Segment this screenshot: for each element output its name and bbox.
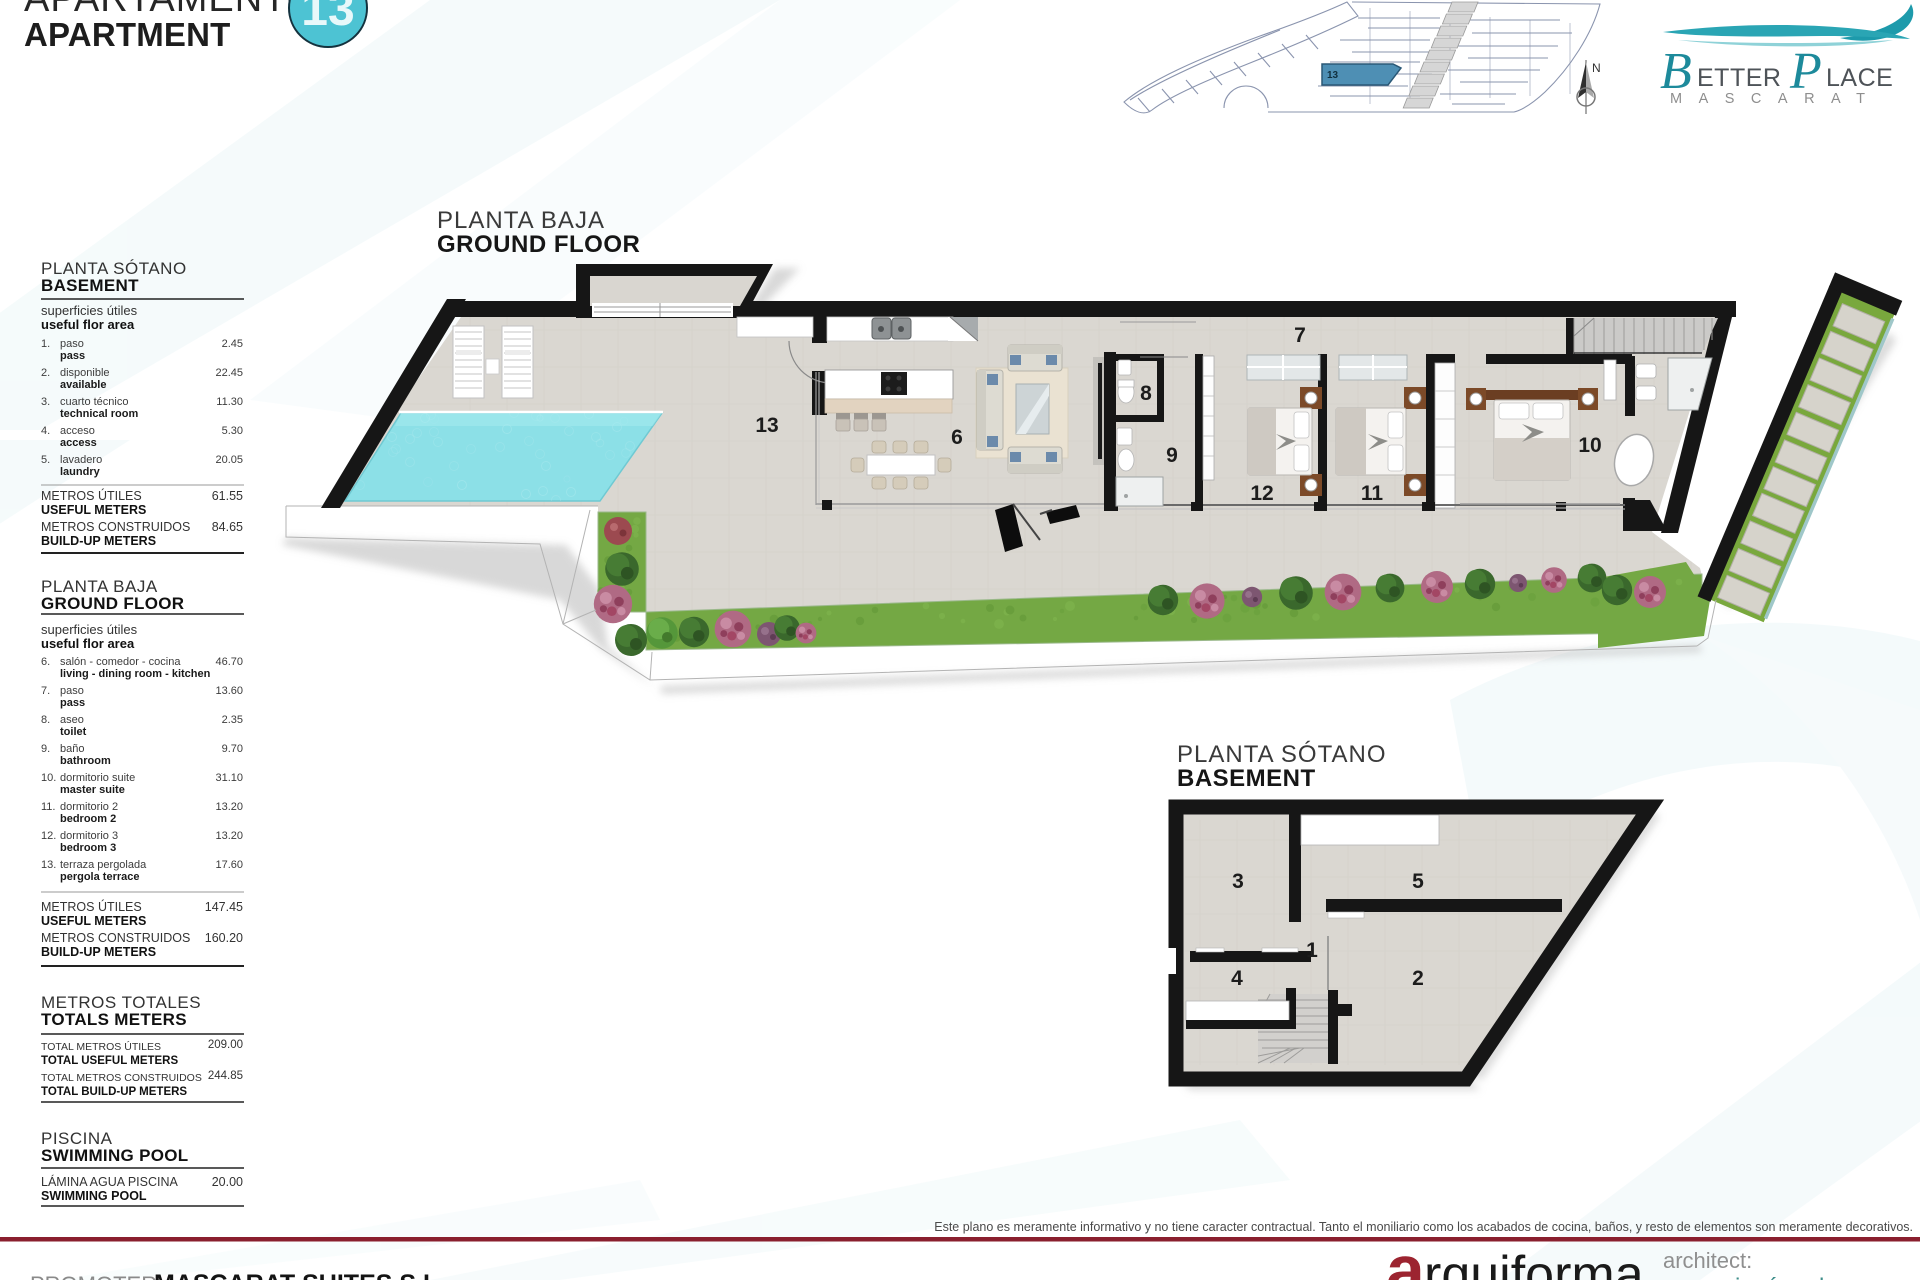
svg-text:4.: 4. <box>41 425 50 437</box>
svg-text:TOTAL METROS ÚTILES: TOTAL METROS ÚTILES <box>41 1040 161 1053</box>
svg-text:9: 9 <box>1166 444 1178 467</box>
svg-text:living - dining room - kitchen: living - dining room - kitchen <box>60 668 211 680</box>
svg-text:josé carlos: josé carlos <box>1734 1274 1850 1280</box>
svg-text:5.: 5. <box>41 454 50 466</box>
svg-text:paso: paso <box>60 338 84 350</box>
svg-text:access: access <box>60 437 97 449</box>
svg-text:46.70: 46.70 <box>215 656 243 668</box>
svg-text:BUILD-UP METERS: BUILD-UP METERS <box>41 534 156 548</box>
svg-text:laundry: laundry <box>60 466 101 478</box>
svg-text:TOTAL METROS CONSTRUIDOS: TOTAL METROS CONSTRUIDOS <box>41 1072 202 1084</box>
svg-text:baño: baño <box>60 743 84 755</box>
svg-text:13.20: 13.20 <box>215 801 243 813</box>
svg-text:13.: 13. <box>41 859 56 871</box>
svg-text:SWIMMING POOL: SWIMMING POOL <box>41 1189 147 1203</box>
svg-text:dormitorio suite: dormitorio suite <box>60 772 135 784</box>
svg-text:244.85: 244.85 <box>208 1070 243 1082</box>
svg-text:USEFUL METERS: USEFUL METERS <box>41 914 146 928</box>
svg-text:technical room: technical room <box>60 408 138 420</box>
svg-text:superficies útiles: superficies útiles <box>41 622 138 637</box>
svg-text:3: 3 <box>1232 870 1244 893</box>
svg-text:4: 4 <box>1231 967 1243 990</box>
svg-text:2.35: 2.35 <box>222 714 243 726</box>
svg-text:pergola terrace: pergola terrace <box>60 871 139 883</box>
svg-text:2.45: 2.45 <box>222 338 243 350</box>
svg-text:bathroom: bathroom <box>60 755 111 767</box>
svg-text:cuarto técnico: cuarto técnico <box>60 396 128 408</box>
svg-text:17.60: 17.60 <box>215 859 243 871</box>
svg-text:20.00: 20.00 <box>212 1175 243 1189</box>
svg-text:disponible: disponible <box>60 367 110 379</box>
svg-text:rquiforma: rquiforma <box>1424 1246 1644 1280</box>
svg-text:13: 13 <box>301 0 354 36</box>
svg-text:GROUND FLOOR: GROUND FLOOR <box>437 231 640 258</box>
svg-text:11.30: 11.30 <box>216 396 243 408</box>
svg-text:MASCARAT: MASCARAT <box>1670 91 1882 107</box>
svg-text:8.: 8. <box>41 714 50 726</box>
svg-text:6: 6 <box>951 426 963 449</box>
svg-text:ETTER: ETTER <box>1697 64 1781 92</box>
svg-text:salón - comedor - cocina: salón - comedor - cocina <box>60 656 181 668</box>
svg-text:TOTALS METERS: TOTALS METERS <box>41 1010 187 1029</box>
svg-text:METROS ÚTILES: METROS ÚTILES <box>41 488 142 503</box>
svg-text:2: 2 <box>1412 967 1424 990</box>
svg-text:TOTAL USEFUL METERS: TOTAL USEFUL METERS <box>41 1055 178 1067</box>
svg-text:147.45: 147.45 <box>205 900 243 914</box>
svg-text:PLANTA BAJA: PLANTA BAJA <box>437 207 605 234</box>
svg-text:20.05: 20.05 <box>215 454 243 466</box>
svg-text:13: 13 <box>1327 70 1339 81</box>
svg-text:84.65: 84.65 <box>212 520 243 534</box>
svg-text:TOTAL BUILD-UP METERS: TOTAL BUILD-UP METERS <box>41 1086 187 1098</box>
svg-text:METROS CONSTRUIDOS: METROS CONSTRUIDOS <box>41 931 190 945</box>
svg-text:available: available <box>60 379 106 391</box>
svg-text:22.45: 22.45 <box>215 367 243 379</box>
svg-text:7.: 7. <box>41 685 50 697</box>
svg-text:bedroom 3: bedroom 3 <box>60 842 116 854</box>
svg-text:USEFUL METERS: USEFUL METERS <box>41 503 146 517</box>
svg-text:BUILD-UP METERS: BUILD-UP METERS <box>41 945 156 959</box>
svg-text:LÁMINA AGUA PISCINA: LÁMINA AGUA PISCINA <box>41 1174 179 1189</box>
svg-text:3.: 3. <box>41 396 50 408</box>
svg-text:GROUND FLOOR: GROUND FLOOR <box>41 594 184 613</box>
svg-text:toilet: toilet <box>60 726 87 738</box>
svg-text:160.20: 160.20 <box>205 931 243 945</box>
svg-text:5: 5 <box>1412 870 1424 893</box>
svg-text:7: 7 <box>1294 324 1306 347</box>
svg-text:61.55: 61.55 <box>212 489 243 503</box>
svg-text:METROS CONSTRUIDOS: METROS CONSTRUIDOS <box>41 520 190 534</box>
svg-text:N: N <box>1592 61 1601 75</box>
svg-text:SWIMMING POOL: SWIMMING POOL <box>41 1146 188 1165</box>
svg-text:9.70: 9.70 <box>222 743 243 755</box>
svg-text:13.60: 13.60 <box>215 685 243 697</box>
svg-text:13: 13 <box>755 414 778 437</box>
svg-text:9.: 9. <box>41 743 50 755</box>
svg-text:a: a <box>1386 1231 1426 1280</box>
svg-text:master suite: master suite <box>60 784 125 796</box>
svg-text:1.: 1. <box>41 338 50 350</box>
svg-text:PLANTA SÓTANO: PLANTA SÓTANO <box>1177 741 1387 768</box>
svg-text:1: 1 <box>1306 939 1318 962</box>
svg-text:METROS ÚTILES: METROS ÚTILES <box>41 899 142 914</box>
svg-text:BASEMENT: BASEMENT <box>41 276 139 295</box>
svg-text:209.00: 209.00 <box>208 1039 243 1051</box>
svg-text:12.: 12. <box>41 830 56 842</box>
svg-text:terraza pergolada: terraza pergolada <box>60 859 147 871</box>
svg-text:useful flor area: useful flor area <box>41 317 135 332</box>
svg-text:paso: paso <box>60 685 84 697</box>
svg-text:10: 10 <box>1578 434 1601 457</box>
svg-text:aseo: aseo <box>60 714 84 726</box>
svg-text:6.: 6. <box>41 656 50 668</box>
svg-text:BASEMENT: BASEMENT <box>1177 765 1316 792</box>
svg-text:architect:: architect: <box>1663 1248 1752 1273</box>
svg-text:13.20: 13.20 <box>215 830 243 842</box>
svg-text:2.: 2. <box>41 367 50 379</box>
svg-text:12: 12 <box>1250 482 1273 505</box>
svg-text:APARTMENT: APARTMENT <box>24 16 231 53</box>
svg-text:superficies útiles: superficies útiles <box>41 303 138 318</box>
svg-text:MASCARAT SUITES S.L.: MASCARAT SUITES S.L. <box>154 1270 445 1280</box>
svg-text:pass: pass <box>60 350 85 362</box>
svg-text:lavadero: lavadero <box>60 454 102 466</box>
svg-text:10.: 10. <box>41 772 56 784</box>
svg-text:LACE: LACE <box>1826 64 1893 92</box>
svg-text:PROMOTER:: PROMOTER: <box>30 1272 163 1280</box>
svg-text:pass: pass <box>60 697 85 709</box>
svg-text:useful flor area: useful flor area <box>41 636 135 651</box>
svg-text:bedroom 2: bedroom 2 <box>60 813 116 825</box>
svg-text:acceso: acceso <box>60 425 95 437</box>
svg-text:8: 8 <box>1140 382 1152 405</box>
svg-text:31.10: 31.10 <box>215 772 243 784</box>
svg-text:dormitorio 3: dormitorio 3 <box>60 830 118 842</box>
svg-text:dormitorio 2: dormitorio 2 <box>60 801 118 813</box>
svg-text:11: 11 <box>1361 482 1384 505</box>
svg-text:5.30: 5.30 <box>222 425 243 437</box>
svg-text:11.: 11. <box>41 801 55 813</box>
